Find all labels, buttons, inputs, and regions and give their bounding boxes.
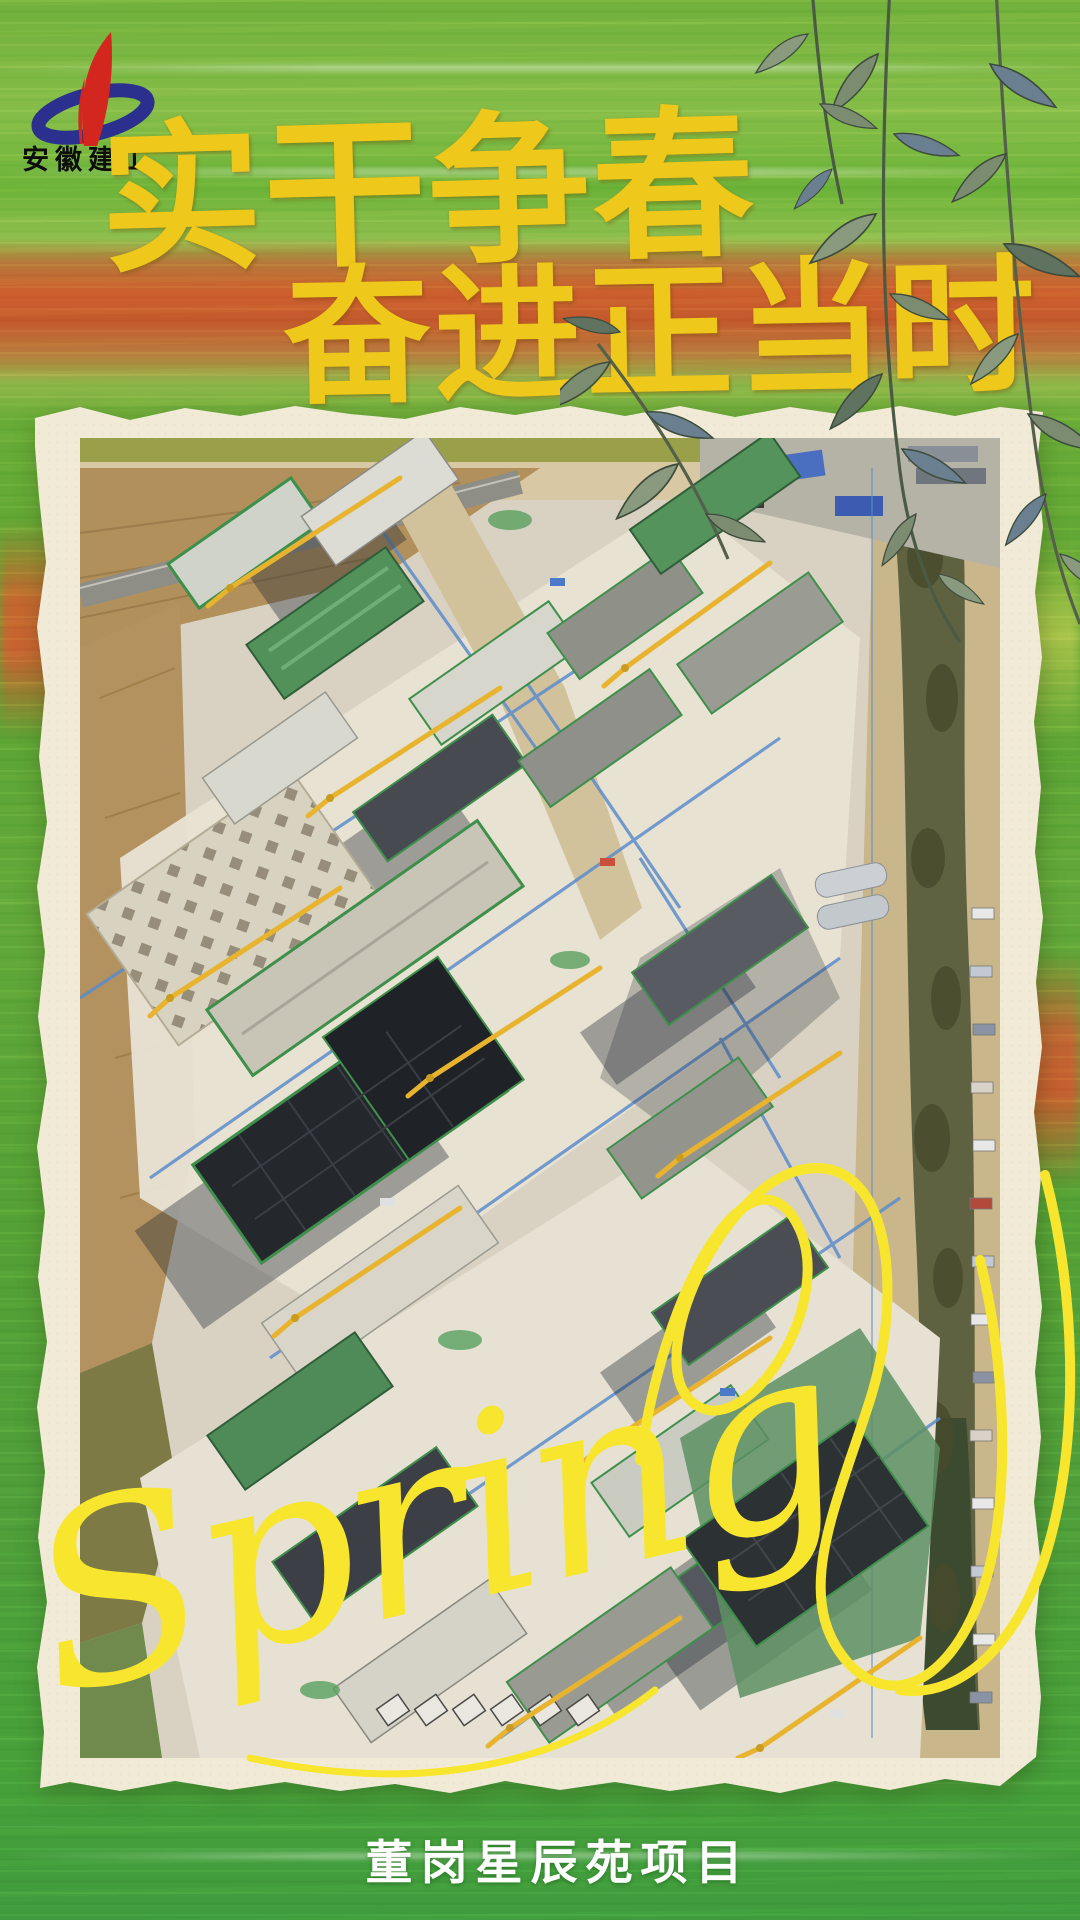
aerial-photo-illustration [80, 438, 1000, 1758]
project-caption: 董岗星辰苑项目 [18, 1824, 1080, 1893]
title-line-2: 奋进正当时 [282, 251, 1039, 412]
poster-root: 安徽建工 实干争春 奋进正当时 [0, 0, 1080, 1920]
aerial-photo [80, 438, 1000, 1758]
torn-paper-frame [35, 402, 1043, 1793]
